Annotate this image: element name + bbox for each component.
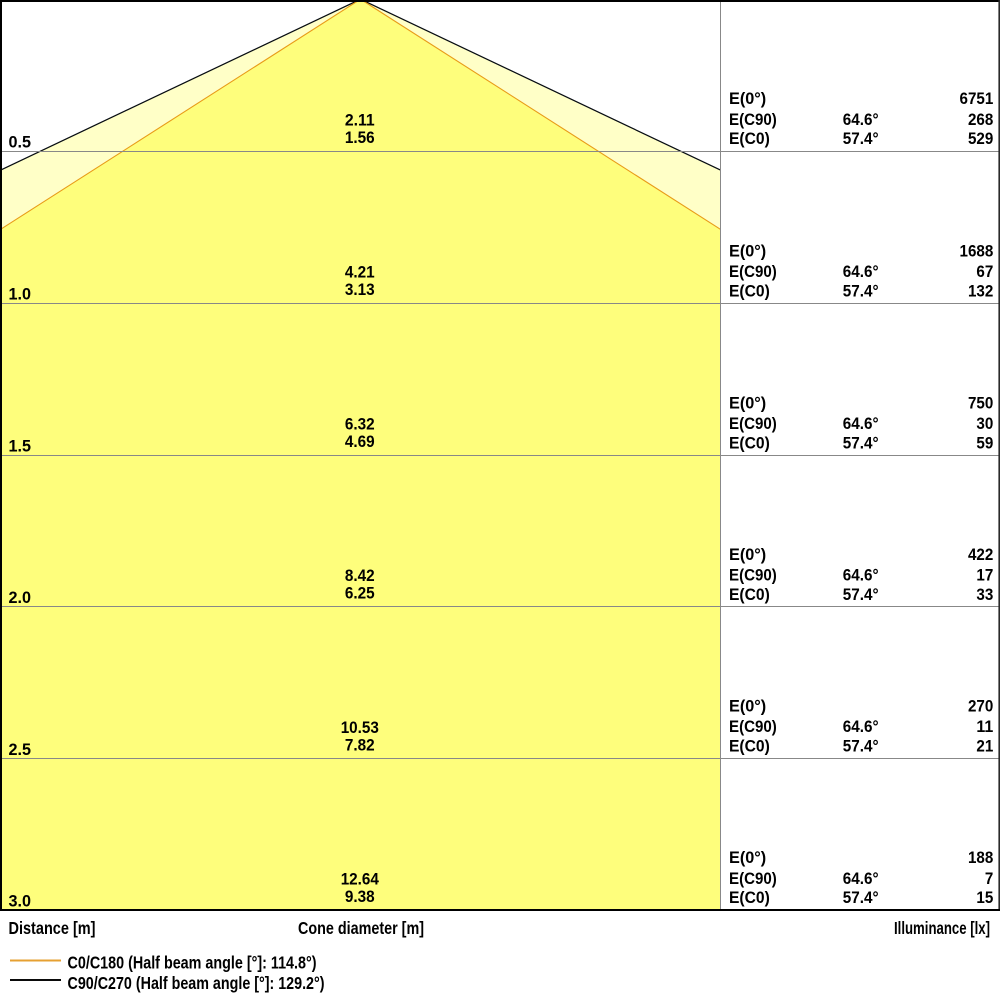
svg-text:Distance [m]: Distance [m] (9, 918, 96, 938)
svg-text:57.4°: 57.4° (843, 129, 879, 148)
svg-text:E(C90): E(C90) (729, 414, 777, 433)
svg-text:132: 132 (968, 281, 993, 300)
svg-text:E(0°): E(0°) (729, 545, 766, 564)
svg-text:1688: 1688 (960, 241, 994, 260)
svg-text:268: 268 (968, 110, 993, 129)
svg-text:6.25: 6.25 (345, 584, 375, 603)
svg-text:64.6°: 64.6° (843, 414, 879, 433)
svg-text:8.42: 8.42 (345, 566, 375, 585)
svg-text:6751: 6751 (960, 89, 994, 108)
svg-text:7.82: 7.82 (345, 735, 375, 754)
svg-text:1.5: 1.5 (9, 437, 32, 456)
svg-text:E(0°): E(0°) (729, 241, 766, 260)
svg-text:E(C0): E(C0) (729, 281, 770, 300)
svg-text:67: 67 (976, 262, 993, 281)
svg-text:E(C0): E(C0) (729, 888, 770, 907)
svg-text:E(C90): E(C90) (729, 717, 777, 736)
svg-text:64.6°: 64.6° (843, 110, 879, 129)
svg-text:6.32: 6.32 (345, 415, 375, 434)
svg-text:422: 422 (968, 545, 993, 564)
svg-text:64.6°: 64.6° (843, 262, 879, 281)
svg-text:15: 15 (976, 888, 993, 907)
svg-text:1.56: 1.56 (345, 128, 375, 147)
svg-text:2.11: 2.11 (345, 111, 375, 130)
svg-text:3.0: 3.0 (9, 892, 32, 911)
svg-text:529: 529 (968, 129, 993, 148)
svg-text:12.64: 12.64 (341, 870, 380, 889)
svg-text:Cone diameter [m]: Cone diameter [m] (298, 918, 424, 938)
svg-text:10.53: 10.53 (341, 718, 379, 737)
svg-text:E(0°): E(0°) (729, 848, 766, 867)
svg-text:30: 30 (976, 414, 993, 433)
svg-text:64.6°: 64.6° (843, 566, 879, 585)
svg-text:57.4°: 57.4° (843, 433, 879, 452)
svg-text:E(C0): E(C0) (729, 585, 770, 604)
svg-text:57.4°: 57.4° (843, 737, 879, 756)
svg-text:7: 7 (985, 869, 993, 888)
svg-text:E(C0): E(C0) (729, 737, 770, 756)
svg-text:E(0°): E(0°) (729, 89, 766, 108)
svg-text:188: 188 (968, 848, 993, 867)
svg-text:C90/C270 (Half beam angle [°]:: C90/C270 (Half beam angle [°]: 129.2°) (68, 973, 325, 993)
svg-text:64.6°: 64.6° (843, 717, 879, 736)
svg-text:2.0: 2.0 (9, 588, 32, 607)
svg-text:4.21: 4.21 (345, 263, 375, 282)
svg-text:750: 750 (968, 393, 993, 412)
svg-text:0.5: 0.5 (9, 133, 32, 152)
svg-text:E(C90): E(C90) (729, 262, 777, 281)
svg-text:E(C90): E(C90) (729, 869, 777, 888)
svg-text:33: 33 (976, 585, 993, 604)
svg-text:E(0°): E(0°) (729, 696, 766, 715)
svg-text:3.13: 3.13 (345, 280, 375, 299)
svg-text:1.0: 1.0 (9, 285, 32, 304)
svg-text:Illuminance [lx]: Illuminance [lx] (894, 918, 990, 938)
svg-text:57.4°: 57.4° (843, 281, 879, 300)
svg-text:270: 270 (968, 696, 993, 715)
svg-text:17: 17 (976, 566, 993, 585)
svg-text:59: 59 (976, 433, 993, 452)
svg-text:E(C0): E(C0) (729, 129, 770, 148)
svg-text:11: 11 (976, 717, 993, 736)
svg-text:57.4°: 57.4° (843, 585, 879, 604)
svg-text:21: 21 (976, 737, 993, 756)
svg-text:57.4°: 57.4° (843, 888, 879, 907)
svg-text:E(0°): E(0°) (729, 393, 766, 412)
svg-text:2.5: 2.5 (9, 740, 32, 759)
svg-text:64.6°: 64.6° (843, 869, 879, 888)
svg-text:E(C90): E(C90) (729, 110, 777, 129)
svg-text:E(C0): E(C0) (729, 433, 770, 452)
svg-text:9.38: 9.38 (345, 887, 375, 906)
svg-text:C0/C180 (Half beam angle [°]:: C0/C180 (Half beam angle [°]: 114.8°) (68, 953, 317, 973)
svg-text:E(C90): E(C90) (729, 566, 777, 585)
svg-text:4.69: 4.69 (345, 432, 375, 451)
